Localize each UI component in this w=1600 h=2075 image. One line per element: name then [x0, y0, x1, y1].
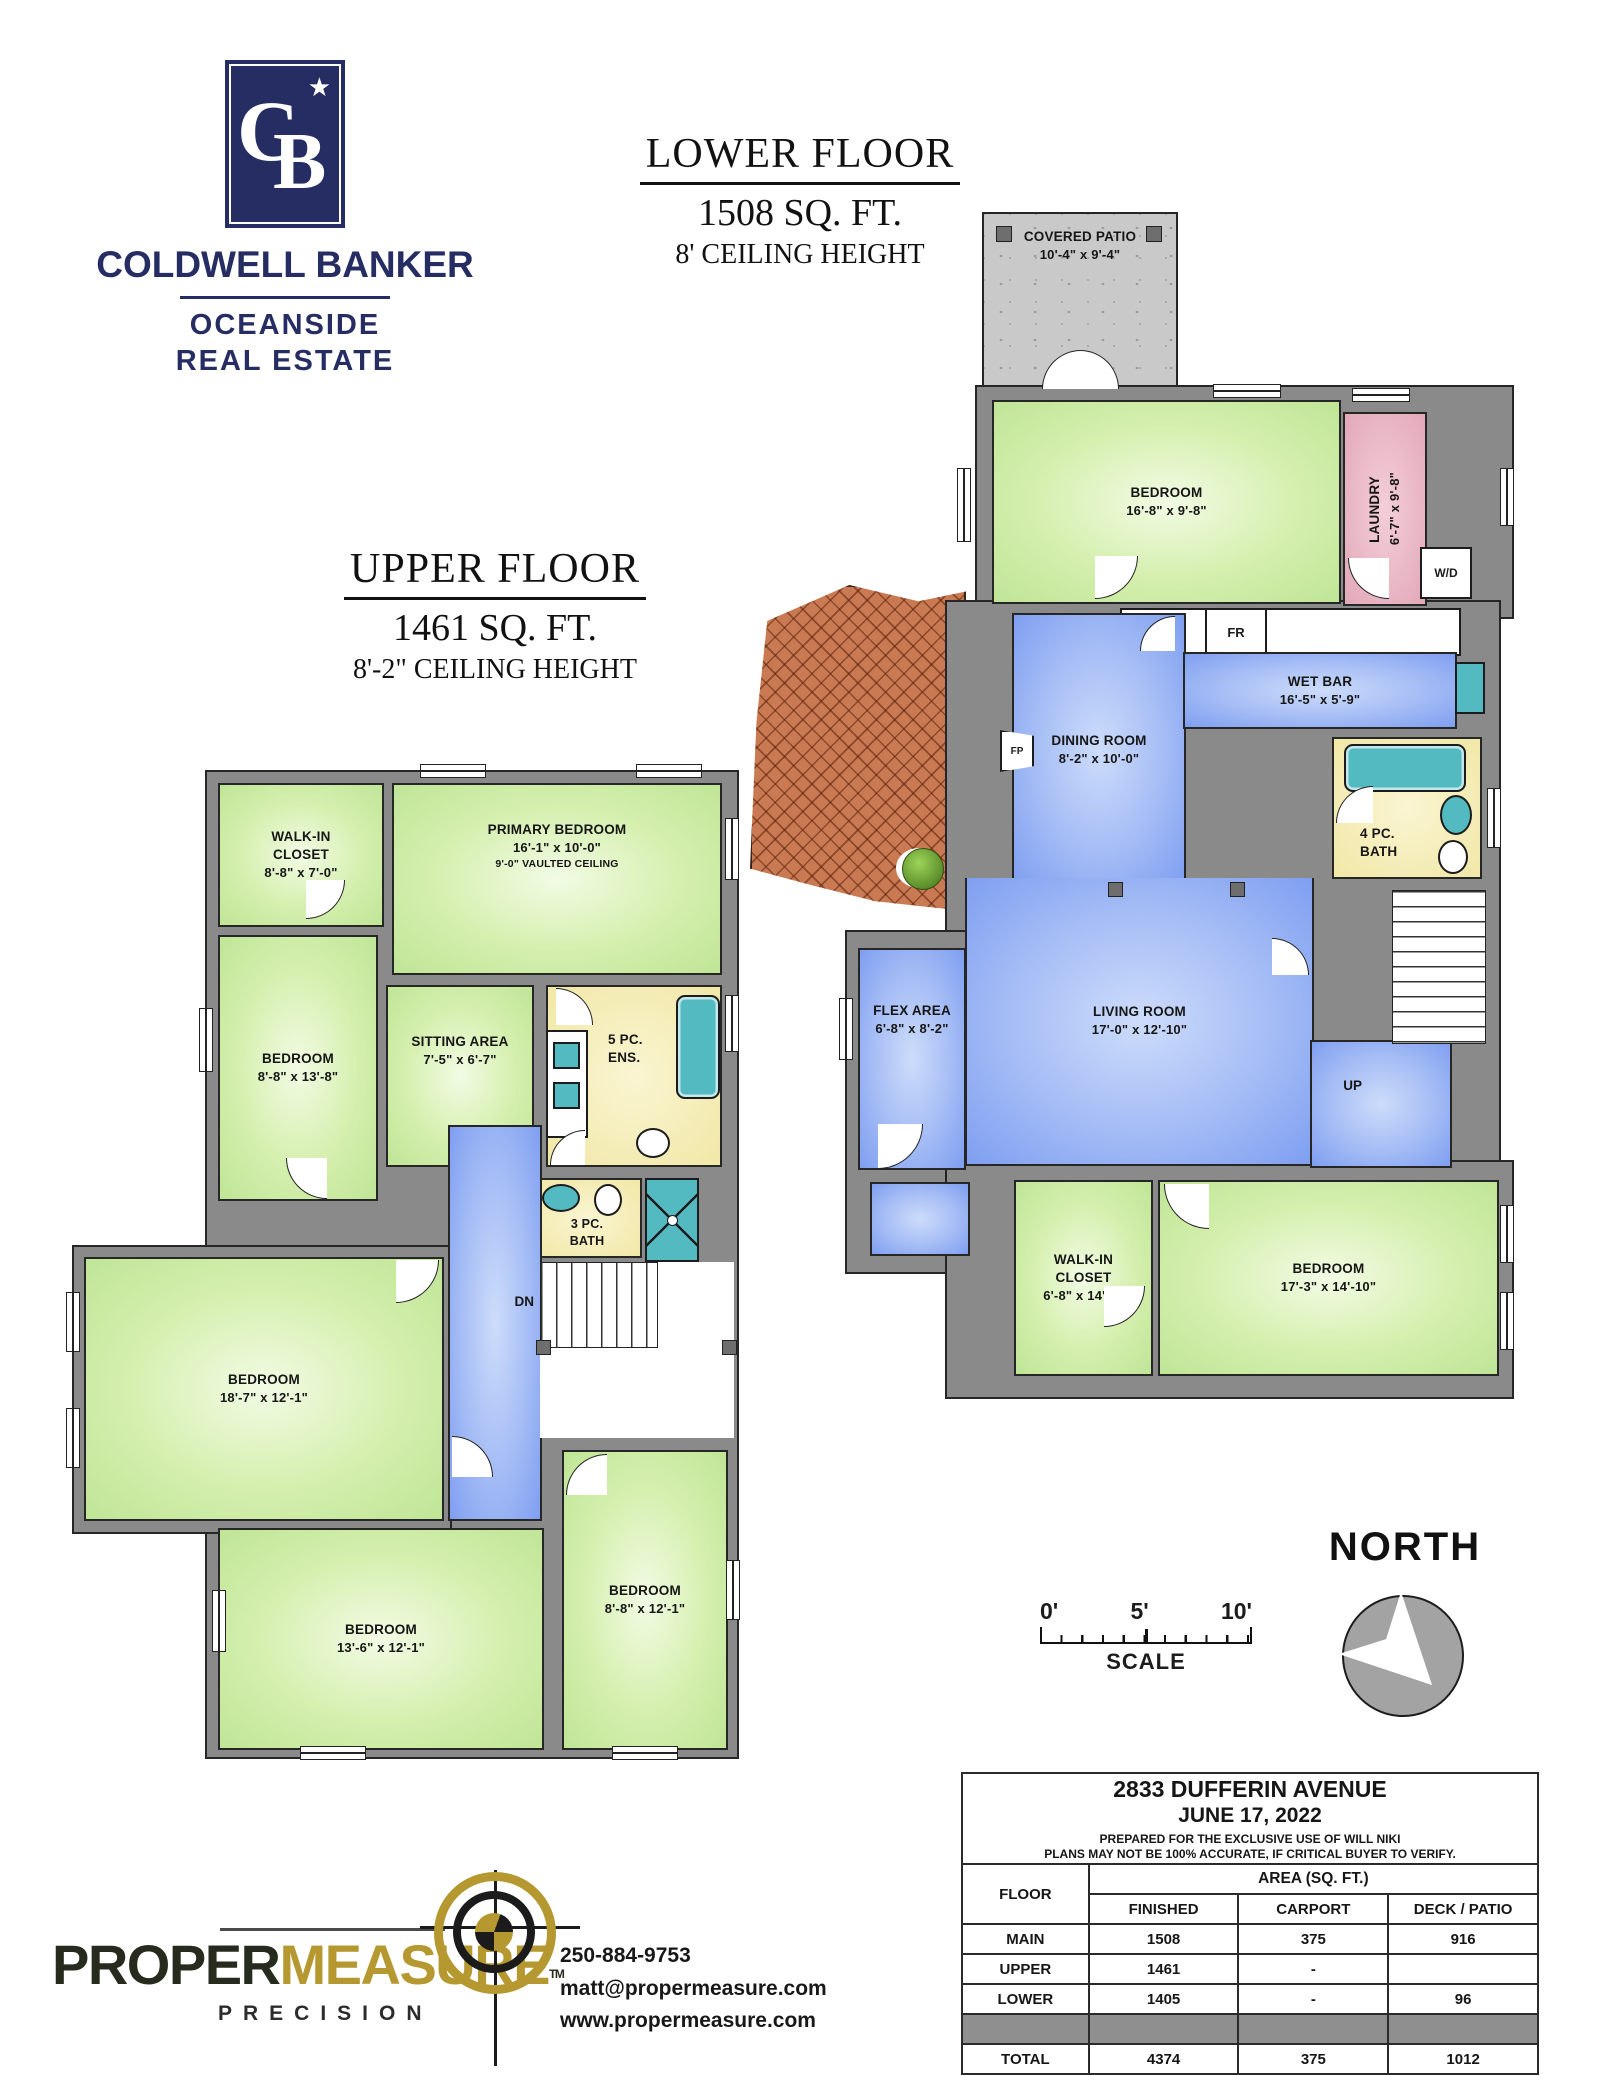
room-label: BEDROOM	[345, 1621, 417, 1639]
cell-carport: -	[1238, 1984, 1388, 2014]
cell-total-label: TOTAL	[962, 2044, 1089, 2074]
area-summary-table: 2833 DUFFERIN AVENUE JUNE 17, 2022 PREPA…	[961, 1772, 1539, 2075]
room-dims: 8'-8" x 12'-1"	[605, 1600, 686, 1618]
cell-finished: 1508	[1089, 1924, 1239, 1954]
window	[725, 818, 739, 880]
table-row: LOWER 1405 - 96	[962, 1984, 1538, 2014]
col-header-finished: FINISHED	[1089, 1894, 1239, 1924]
room-label: PRIMARY BEDROOM	[488, 821, 627, 839]
window	[212, 1590, 226, 1652]
col-header-floor: FLOOR	[962, 1864, 1089, 1924]
primary-bedroom: PRIMARY BEDROOM 16'-1" x 10'-0" 9'-0" VA…	[392, 783, 722, 975]
upper-bedroom-big: BEDROOM 18'-7" x 12'-1"	[84, 1257, 444, 1521]
room-label: ENS.	[608, 1049, 640, 1067]
wordmark-proper: PROPER	[52, 1933, 280, 1996]
window	[199, 1008, 213, 1072]
room-label: WALK-IN CLOSET	[246, 828, 356, 864]
property-address: 2833 DUFFERIN AVENUE	[963, 1776, 1537, 1803]
north-label: NORTH	[1290, 1525, 1520, 1570]
scale-tick-10: 10'	[1221, 1598, 1252, 1625]
ensuite-sink	[553, 1042, 580, 1069]
window	[66, 1292, 80, 1352]
room-label: BEDROOM	[609, 1582, 681, 1600]
window	[726, 1560, 740, 1620]
table-row: MAIN 1508 375 916	[962, 1924, 1538, 1954]
room-label: BEDROOM	[262, 1050, 334, 1068]
col-header-carport: CARPORT	[1238, 1894, 1388, 1924]
cell-floor: UPPER	[962, 1954, 1089, 1984]
scale-ruler	[1040, 1627, 1252, 1644]
room-label: BATH	[570, 1233, 605, 1250]
room-dims: 18'-7" x 12'-1"	[220, 1389, 308, 1407]
upper-bedroom-8: BEDROOM 8'-8" x 12'-1"	[562, 1450, 728, 1750]
col-header-area: AREA (SQ. FT.)	[1089, 1864, 1538, 1894]
phone-number: 250-884-9753	[560, 1940, 827, 1973]
bath-sink	[542, 1184, 580, 1212]
plan-date: JUNE 17, 2022	[963, 1804, 1537, 1828]
table-header-box: 2833 DUFFERIN AVENUE JUNE 17, 2022 PREPA…	[962, 1773, 1538, 1864]
cell-carport: 375	[1238, 1924, 1388, 1954]
stair-post	[722, 1340, 737, 1355]
room-label: 5 PC.	[608, 1031, 643, 1049]
room-dims: 13'-6" x 12'-1"	[337, 1639, 425, 1657]
room-label: BEDROOM	[228, 1371, 300, 1389]
scale-tick-5: 5'	[1130, 1598, 1148, 1625]
cell-total-carport: 375	[1238, 2044, 1388, 2074]
stair-post	[536, 1340, 551, 1355]
cell-deck: 96	[1388, 1984, 1538, 2014]
upper-floor-plan: WALK-IN CLOSET 8'-8" x 7'-0" PRIMARY BED…	[0, 0, 1600, 2071]
propermeasure-logo: PROPERMEASURETM PRECISION 250-884-9753 m…	[40, 1870, 840, 2070]
cell-total-finished: 4374	[1089, 2044, 1239, 2074]
toilet	[636, 1128, 670, 1158]
cell-floor: MAIN	[962, 1924, 1089, 1954]
window	[300, 1746, 366, 1760]
target-crosshair-icon	[410, 1870, 580, 2070]
table-row: UPPER 1461 -	[962, 1954, 1538, 1984]
cell-deck	[1388, 1954, 1538, 1984]
cell-carport: -	[1238, 1954, 1388, 1984]
wordmark-precision: PRECISION	[218, 2002, 433, 2026]
scale-word: SCALE	[1040, 1649, 1252, 1675]
prepared-for: PREPARED FOR THE EXCLUSIVE USE OF WILL N…	[963, 1832, 1537, 1846]
upper-walkin-closet: WALK-IN CLOSET 8'-8" x 7'-0"	[218, 783, 384, 927]
window	[66, 1408, 80, 1468]
room-dims: 8'-8" x 13'-8"	[258, 1068, 339, 1086]
cell-total-deck: 1012	[1388, 2044, 1538, 2074]
cell-finished: 1461	[1089, 1954, 1239, 1984]
room-dims: 16'-1" x 10'-0"	[513, 839, 601, 857]
shower-stall	[645, 1178, 699, 1262]
disclaimer: PLANS MAY NOT BE 100% ACCURATE, IF CRITI…	[963, 1847, 1537, 1861]
window	[612, 1746, 678, 1760]
website-url: www.propermeasure.com	[560, 2005, 827, 2038]
cell-floor: LOWER	[962, 1984, 1089, 2014]
window	[636, 764, 702, 778]
col-header-deck: DECK / PATIO	[1388, 1894, 1538, 1924]
contact-block: 250-884-9753 matt@propermeasure.com www.…	[560, 1940, 827, 2038]
scale-tick-0: 0'	[1040, 1598, 1058, 1625]
window	[420, 764, 486, 778]
cell-deck: 916	[1388, 1924, 1538, 1954]
ensuite-tub	[676, 995, 720, 1099]
table-filler-row	[962, 2014, 1538, 2044]
table-total-row: TOTAL 4374 375 1012	[962, 2044, 1538, 2074]
window	[725, 995, 739, 1052]
north-compass-icon	[1342, 1595, 1464, 1717]
room-label: 3 PC.	[571, 1216, 603, 1233]
toilet	[594, 1184, 622, 1216]
dn-label: DN	[478, 1294, 534, 1309]
room-dims: 7'-5" x 6'-7"	[423, 1051, 496, 1069]
scale-bar: 0' 5' 10' SCALE	[1040, 1598, 1252, 1675]
room-label: SITTING AREA	[411, 1033, 508, 1051]
email-address: matt@propermeasure.com	[560, 1973, 827, 2006]
room-note: 9'-0" VAULTED CEILING	[495, 857, 618, 871]
stairs-down	[540, 1262, 658, 1348]
cell-finished: 1405	[1089, 1984, 1239, 2014]
upper-bedroom-13: BEDROOM 13'-6" x 12'-1"	[218, 1528, 544, 1750]
ensuite-sink	[553, 1082, 580, 1109]
